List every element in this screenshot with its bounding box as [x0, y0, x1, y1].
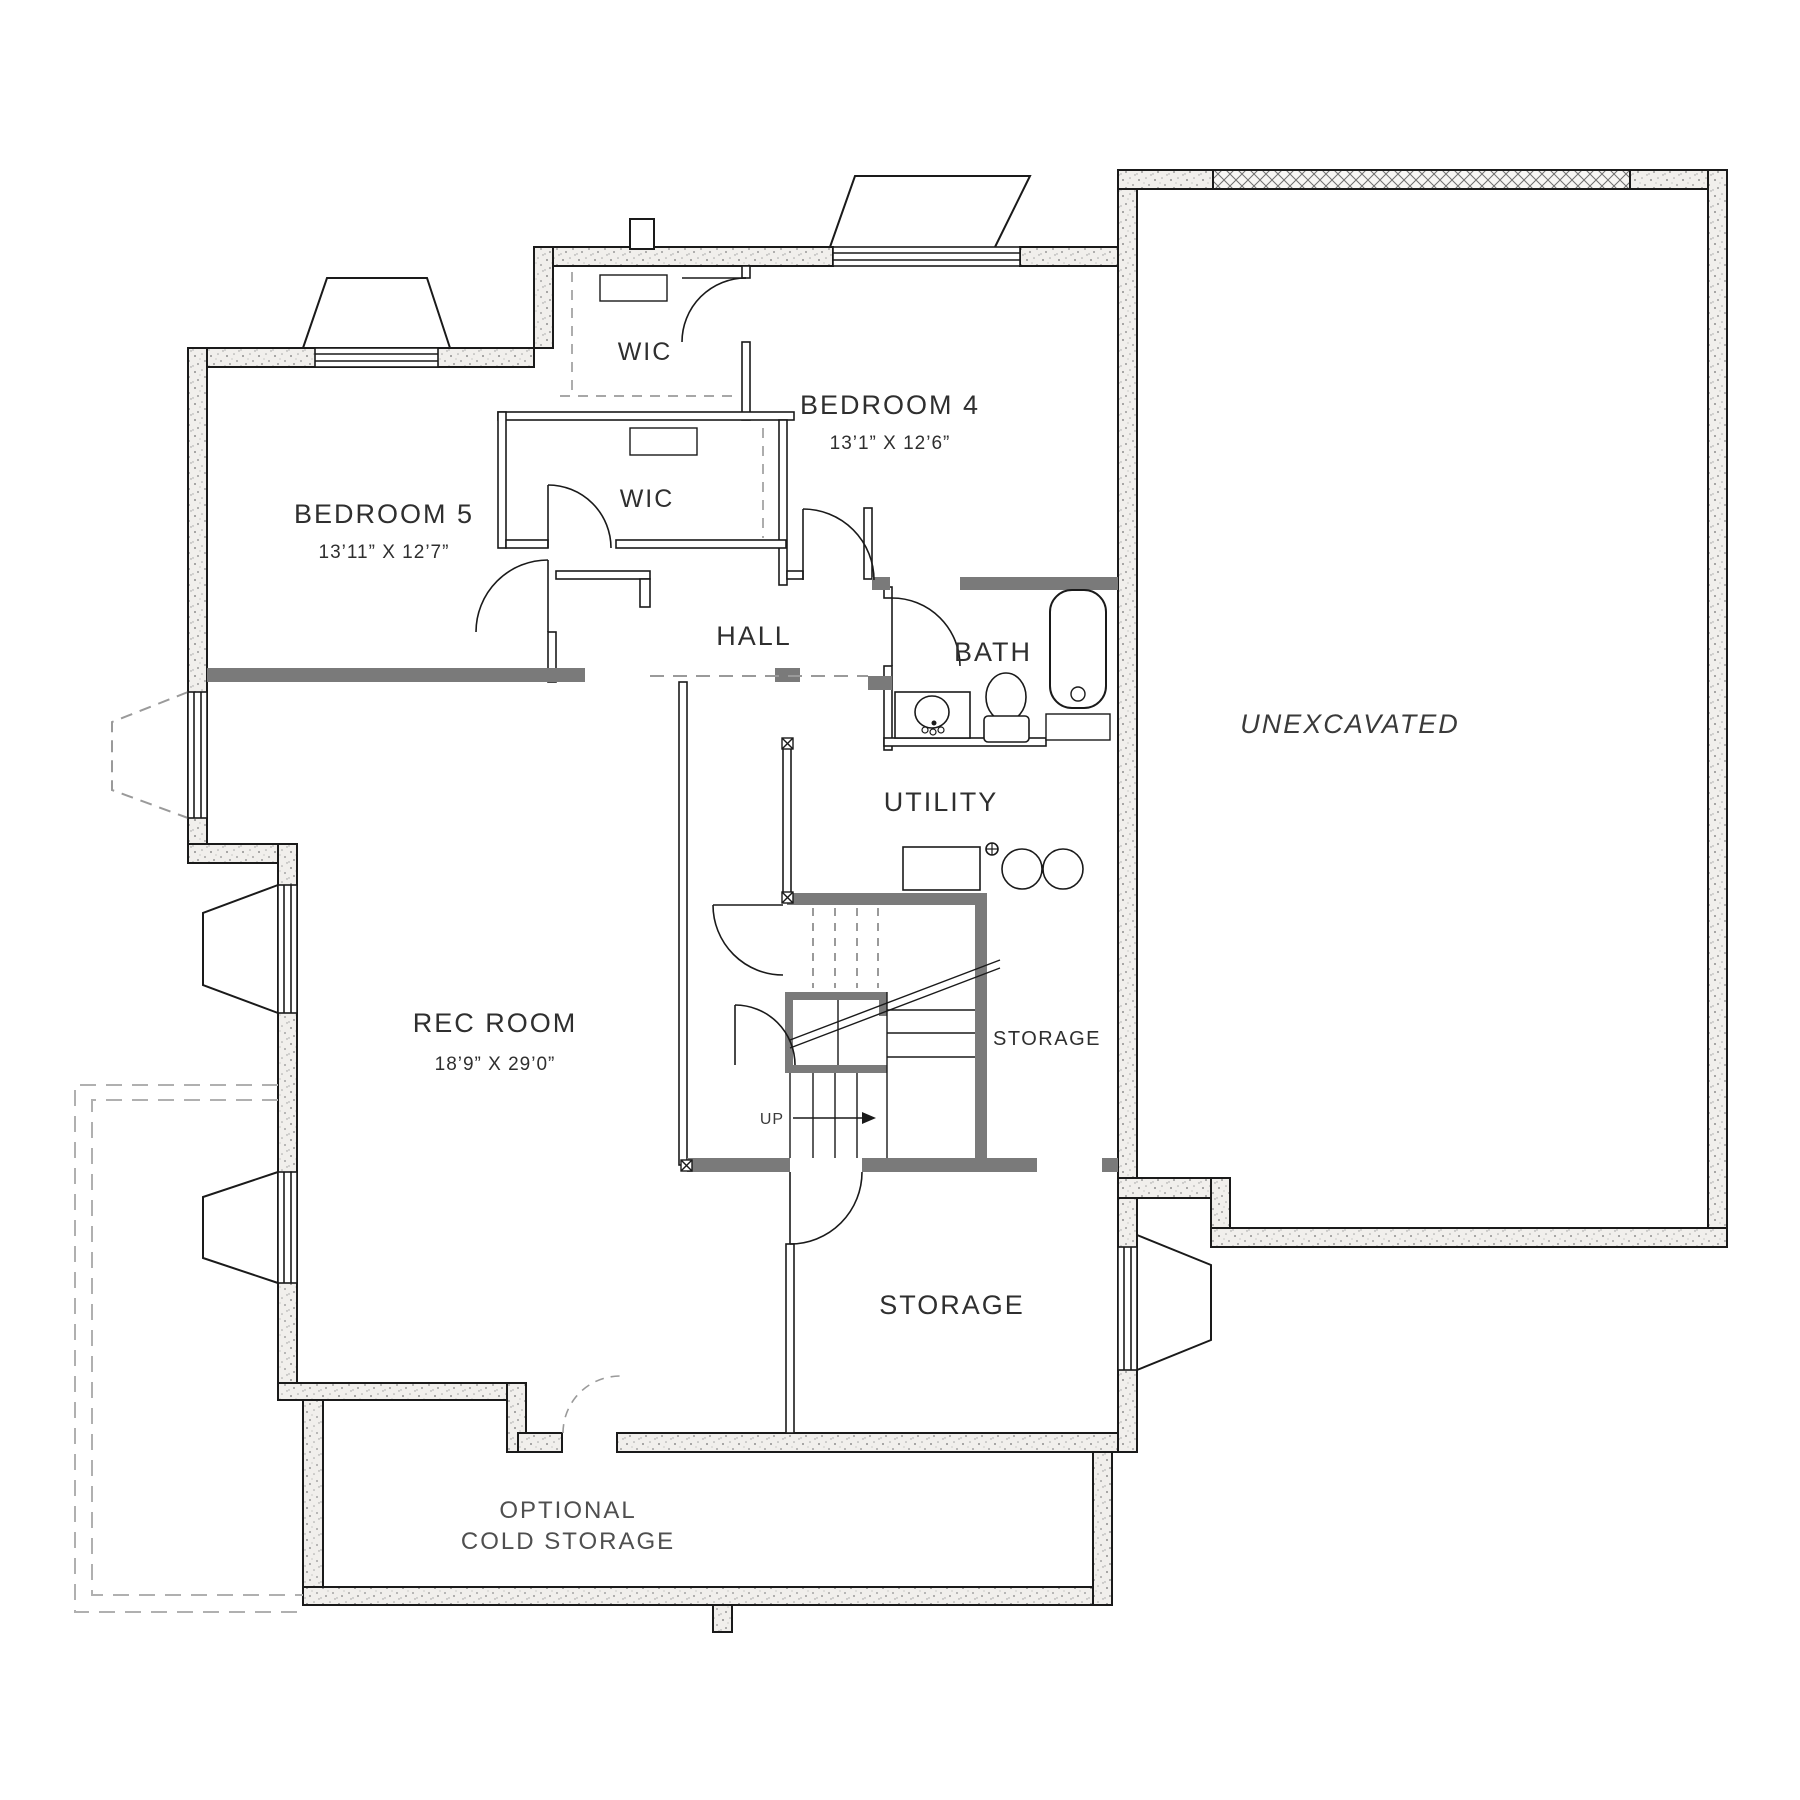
wic-lower-shelf	[630, 428, 697, 455]
door-wic-lower	[548, 485, 611, 548]
water-heater-fixture	[1002, 849, 1042, 889]
dark-wall-bath-top-b	[960, 577, 1118, 590]
window-storage-right	[1118, 1247, 1137, 1370]
storage-lower-label: STORAGE	[879, 1290, 1025, 1320]
dark-wall-stair-bottom-a	[687, 1158, 790, 1172]
wall-wic-left	[534, 247, 553, 348]
vanity-counter	[895, 692, 970, 738]
window-well-rec-1	[203, 885, 278, 1013]
room-labels: BEDROOM 5 13’11” X 12’7” BEDROOM 4 13’1”…	[294, 338, 1460, 1555]
utility-label: UTILITY	[884, 787, 999, 817]
wall-unex-top-crosshatch	[1213, 170, 1630, 189]
window-well-storage-right	[1137, 1235, 1211, 1370]
landing-wall-top	[785, 992, 887, 1000]
dark-wall-stair-bottom-b	[862, 1158, 1037, 1172]
wall-unex-right	[1708, 170, 1727, 1247]
door-bedroom5	[476, 560, 548, 632]
window-rec-left-2	[278, 1172, 297, 1283]
wall-bottom-left	[278, 1383, 526, 1400]
door-storage-lower	[790, 1172, 862, 1244]
rec-room-label: REC ROOM	[413, 1008, 578, 1038]
dark-wall-bed5-rec	[207, 668, 585, 682]
wall-top-main-b	[1020, 247, 1118, 266]
furnace-fixture	[903, 847, 980, 890]
window-bed5-top	[315, 348, 438, 367]
dark-wall-utility-bottom	[787, 893, 987, 905]
x-post-icon	[681, 1160, 692, 1171]
door-utility	[713, 905, 783, 975]
wall-cs-right	[1093, 1452, 1112, 1605]
door-wic-upper	[682, 278, 746, 342]
utility-fixtures	[903, 843, 1083, 890]
basement-floor-plan: UP	[0, 0, 1800, 1800]
window-rec-left-1	[278, 885, 297, 1013]
stairs-up-label: UP	[760, 1111, 784, 1128]
bedroom4-dims: 13’1” X 12’6”	[830, 433, 951, 454]
window-well-bed5-top	[303, 278, 450, 348]
bath-label: BATH	[954, 637, 1032, 667]
staircase: UP	[760, 908, 1000, 1158]
bedroom5-dims: 13’11” X 12’7”	[319, 542, 450, 563]
wall-unex-top-a	[1118, 170, 1213, 189]
wic-upper-shelf	[600, 275, 667, 301]
door-bath	[892, 598, 960, 666]
toilet-fixture	[984, 673, 1029, 742]
cold-storage-label-line2: COLD STORAGE	[461, 1528, 675, 1555]
landing-wall-bottom	[785, 1065, 887, 1073]
x-post-icon	[782, 738, 793, 749]
wall-top-main-a	[534, 247, 833, 266]
wic-upper-label: WIC	[618, 338, 673, 366]
window-well-bed5-left-dashed	[112, 692, 188, 818]
unexcavated-label: UNEXCAVATED	[1240, 709, 1460, 739]
wic-lower-label: WIC	[620, 485, 675, 513]
cold-storage-label-line1: OPTIONAL	[499, 1497, 636, 1524]
post-symbols	[681, 738, 793, 1171]
wall-unex-bottom	[1211, 1228, 1727, 1247]
stair-break-line	[790, 960, 1000, 1048]
bedroom4-label: BEDROOM 4	[800, 390, 980, 420]
water-softener-fixture	[1043, 849, 1083, 889]
wall-cs-left	[303, 1400, 323, 1605]
window-bed5-left	[188, 692, 207, 818]
storage-upper-label: STORAGE	[993, 1028, 1101, 1050]
dark-stub-opening-east	[868, 676, 892, 690]
window-bed4-top	[833, 247, 1020, 266]
bedroom5-label: BEDROOM 5	[294, 499, 474, 529]
dark-wall-storage-left	[975, 905, 987, 1172]
bathtub-fixture	[1046, 590, 1110, 740]
wall-bottom-right-a	[518, 1433, 562, 1452]
door-cold-storage-dashed	[563, 1376, 620, 1433]
wall-bottom-right-b	[617, 1433, 1137, 1452]
rec-room-dims: 18’9” X 29’0”	[435, 1054, 556, 1075]
floor-plan-page: UP	[0, 0, 1800, 1800]
dark-wall-stair-bottom-stub	[1102, 1158, 1118, 1172]
patio-dashed-outline	[75, 1085, 303, 1612]
floor-drain-icon	[986, 843, 998, 855]
wall-cs-bottom	[303, 1587, 1112, 1605]
wall-cs-bump	[713, 1605, 732, 1632]
x-post-icon	[782, 892, 793, 903]
window-well-bed4-top	[830, 176, 1030, 247]
hall-label: HALL	[716, 621, 792, 651]
window-well-rec-2	[203, 1172, 278, 1283]
chimney-bump	[630, 219, 654, 249]
